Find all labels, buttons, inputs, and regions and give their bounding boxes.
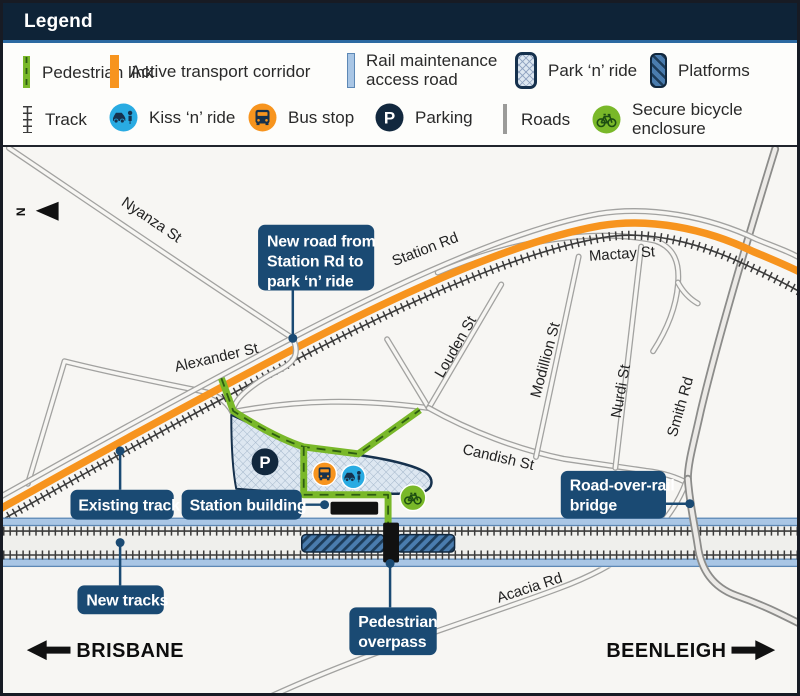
legend-title: Legend	[24, 11, 93, 33]
svg-text:P: P	[259, 453, 270, 472]
bicycle-icon	[592, 105, 621, 134]
svg-text:park ‘n’ ride: park ‘n’ ride	[267, 273, 354, 290]
svg-text:bridge: bridge	[570, 498, 618, 515]
legend-item-bus-stop: Bus stop	[248, 103, 354, 132]
svg-text:New tracks: New tracks	[86, 592, 168, 609]
roads-icon	[503, 104, 507, 134]
svg-text:Road-over-rail: Road-over-rail	[570, 478, 675, 495]
legend-item-kiss-n-ride: Kiss ‘n’ ride	[109, 103, 235, 132]
svg-text:Existing track: Existing track	[78, 498, 180, 515]
north-label: N	[14, 207, 28, 216]
legend-header: Legend	[3, 3, 797, 43]
rail-maintenance-road-south	[3, 558, 797, 566]
west-label: BRISBANE	[76, 640, 184, 662]
legend-item-roads: Roads	[503, 104, 570, 134]
platform-east	[397, 535, 455, 552]
parking-map-icon: P	[252, 448, 279, 475]
legend-label: Bus stop	[288, 108, 354, 127]
parking-icon: P	[375, 103, 404, 132]
platforms-swatch-icon	[650, 53, 667, 88]
east-label: BEENLEIGH	[606, 640, 726, 662]
legend-label: Active transport corridor	[130, 62, 310, 81]
legend-item-rail-maintenance: Rail maintenanceaccess road	[347, 51, 497, 89]
legend-label: Kiss ‘n’ ride	[149, 108, 235, 127]
pedestrian-overpass	[383, 523, 399, 563]
platform-west	[302, 535, 384, 552]
legend-item-track: Track	[21, 103, 87, 136]
track-icon	[21, 103, 34, 136]
map: P Nyanza St Alexander St	[3, 145, 797, 693]
svg-text:Station Rd to: Station Rd to	[267, 254, 364, 271]
svg-text:New road from: New road from	[267, 234, 376, 251]
legend: Pedestrian link Active transport corrido…	[3, 43, 797, 145]
legend-item-bicycle: Secure bicycleenclosure	[592, 100, 743, 138]
bus-stop-map-icon	[313, 462, 337, 486]
kiss-n-ride-map-icon	[341, 465, 365, 489]
legend-label: Parking	[415, 108, 473, 127]
svg-text:Pedestrian: Pedestrian	[358, 614, 437, 631]
active-transport-corridor-swatch-icon	[110, 55, 119, 88]
svg-text:overpass: overpass	[358, 634, 426, 651]
legend-label: Platforms	[678, 61, 750, 80]
svg-text:P: P	[384, 109, 395, 128]
legend-label: Rail maintenanceaccess road	[366, 51, 497, 89]
legend-item-park-n-ride: Park ‘n’ ride	[515, 52, 637, 89]
legend-label: Roads	[521, 110, 570, 129]
svg-text:Station building: Station building	[190, 498, 307, 515]
kiss-n-ride-icon	[109, 103, 138, 132]
legend-label: Park ‘n’ ride	[548, 61, 637, 80]
station-map-infographic: Legend Pedestrian link Active transport …	[0, 0, 800, 696]
rail-maintenance-road-swatch-icon	[347, 53, 355, 88]
legend-label: Track	[45, 110, 87, 129]
bus-stop-icon	[248, 103, 277, 132]
pedestrian-link-swatch-icon	[21, 55, 31, 89]
bicycle-enclosure-map-icon	[400, 485, 426, 511]
map-canvas: P Nyanza St Alexander St	[3, 147, 797, 693]
legend-label: Secure bicycleenclosure	[632, 100, 743, 138]
park-n-ride-swatch-icon	[515, 52, 537, 89]
legend-item-parking: P Parking	[375, 103, 473, 132]
legend-item-platforms: Platforms	[650, 53, 750, 88]
station-building	[331, 502, 379, 515]
legend-item-active-transport: Active transport corridor	[110, 55, 310, 88]
